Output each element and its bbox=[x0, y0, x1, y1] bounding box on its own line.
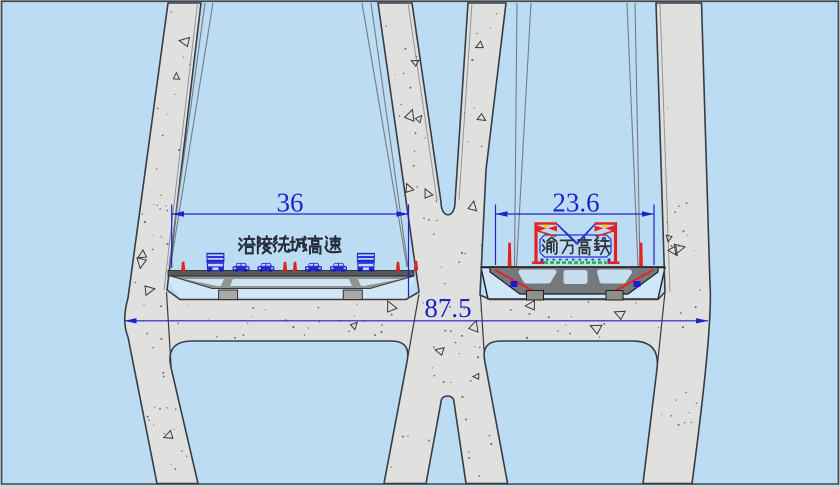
svg-text:23.6: 23.6 bbox=[552, 188, 599, 218]
svg-text:36: 36 bbox=[277, 188, 304, 218]
svg-text:87.5: 87.5 bbox=[424, 293, 471, 323]
